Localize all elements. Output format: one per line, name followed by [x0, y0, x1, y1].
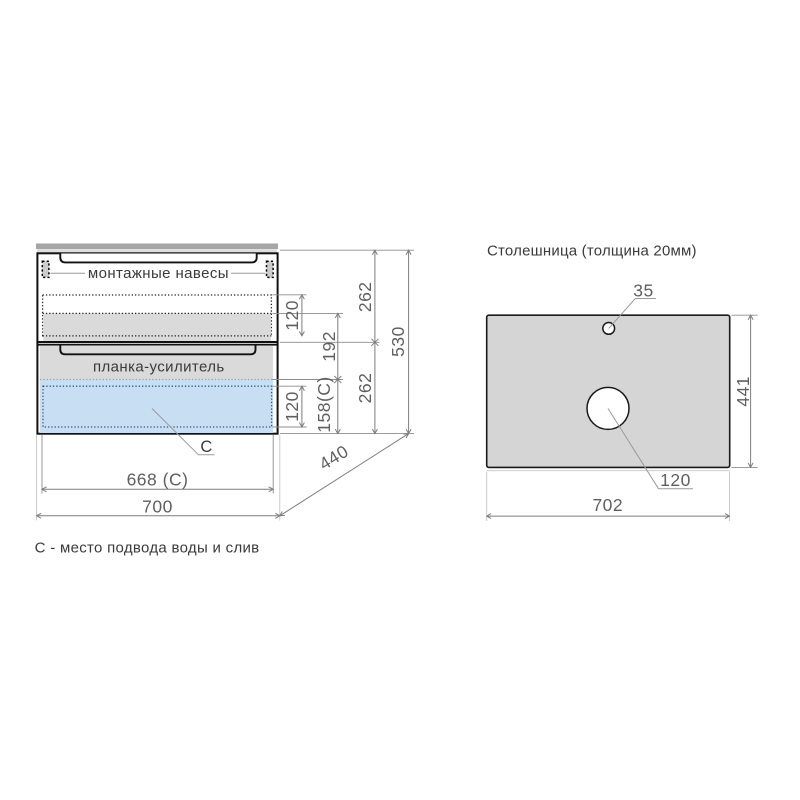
svg-text:700: 700 — [142, 496, 173, 516]
svg-text:35: 35 — [633, 281, 653, 301]
svg-text:530: 530 — [388, 326, 408, 357]
svg-text:С - место подвода воды и слив: С - место подвода воды и слив — [35, 540, 260, 557]
svg-text:С: С — [200, 438, 212, 456]
svg-text:702: 702 — [592, 495, 623, 515]
svg-text:262: 262 — [355, 373, 375, 404]
svg-text:120: 120 — [282, 300, 302, 331]
svg-text:192: 192 — [319, 331, 339, 362]
svg-text:441: 441 — [733, 376, 753, 407]
svg-text:158(С): 158(С) — [314, 376, 334, 433]
svg-text:монтажные навесы: монтажные навесы — [88, 265, 229, 282]
svg-text:668 (С): 668 (С) — [127, 470, 189, 490]
svg-text:120: 120 — [660, 470, 691, 490]
svg-text:планка-усилитель: планка-усилитель — [93, 359, 225, 376]
svg-text:262: 262 — [355, 281, 375, 312]
svg-text:120: 120 — [282, 391, 302, 422]
svg-text:Столешница (толщина 20мм): Столешница (толщина 20мм) — [487, 243, 697, 260]
